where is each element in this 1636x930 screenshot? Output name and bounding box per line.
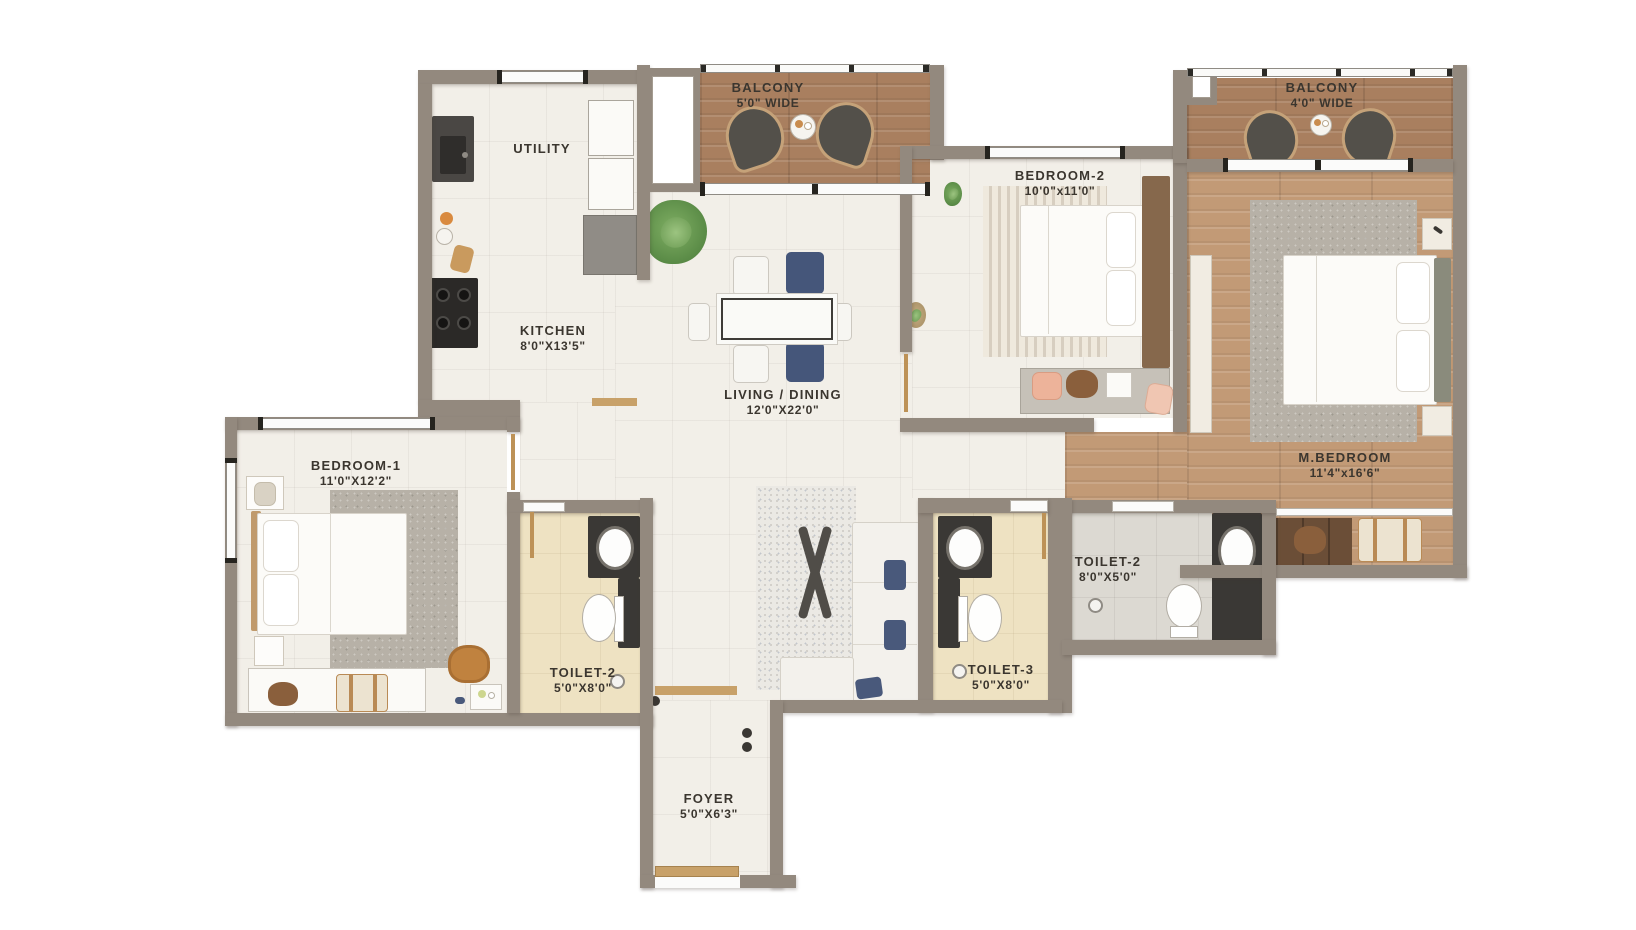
burner-icon [457, 288, 471, 302]
coffee-cup-icon [795, 120, 803, 128]
kitchen-threshold [592, 398, 637, 406]
window [985, 147, 1125, 158]
balcony-table [790, 114, 816, 140]
balcony-railing [700, 64, 930, 73]
door-leaf [904, 354, 908, 412]
dining-table [716, 293, 838, 345]
wall [1048, 498, 1072, 713]
pillow [1106, 212, 1136, 268]
refrigerator [588, 100, 634, 156]
sliding-door [1223, 159, 1413, 171]
duffel-bag [1066, 370, 1098, 398]
room-label-foyer: FOYER 5'0"X6'3" [680, 791, 738, 822]
door-leaf [1042, 513, 1046, 559]
room-label-utility: UTILITY [513, 141, 571, 157]
window [497, 71, 588, 83]
room-label-toilet-2-master: TOILET-2 8'0"X5'0" [1075, 554, 1141, 585]
shower-head-icon [1088, 598, 1103, 613]
wall [418, 400, 520, 417]
burner-icon [436, 288, 450, 302]
entrance-door [655, 866, 739, 877]
coffee-cup-icon [1322, 120, 1329, 127]
nightstand [1422, 406, 1452, 436]
dining-chair [733, 345, 769, 383]
deco-cup-icon [488, 692, 495, 699]
wall [507, 513, 520, 713]
cooktop [430, 278, 478, 348]
bedroom-2-headboard [1142, 176, 1170, 368]
balcony-railing [1187, 68, 1453, 77]
duffel-bag [1294, 526, 1326, 554]
pillow [263, 574, 299, 626]
deco-cup-icon [478, 690, 486, 698]
throw-pillow [884, 620, 906, 650]
cushion [1032, 372, 1062, 400]
coffee-cup-icon [804, 122, 812, 130]
foyer-threshold [655, 686, 737, 695]
vanity-counter [938, 578, 960, 648]
nightstand [254, 636, 284, 666]
room-label-m-bedroom: M.BEDROOM 11'4"x16'6" [1298, 450, 1391, 481]
sliding-door [700, 183, 930, 195]
wall [640, 498, 653, 888]
dining-chair [733, 256, 769, 296]
dining-chair [688, 303, 710, 341]
coffee-table-icon [795, 525, 835, 620]
deco-item [455, 697, 465, 704]
toilet-icon [1166, 584, 1202, 628]
shaft [1192, 76, 1211, 98]
floor-plan: BALCONY 5'0" WIDE BALCONY 4'0" WIDE UTIL… [0, 0, 1636, 930]
toilet-tank [958, 596, 968, 642]
floor-foyer [653, 700, 770, 875]
deco-tray [254, 482, 276, 506]
wall [1180, 565, 1467, 578]
room-label-balcony-2: BALCONY 4'0" WIDE [1286, 80, 1359, 111]
pillow [263, 520, 299, 572]
balcony-table [1310, 114, 1332, 136]
room-label-toilet-3: TOILET-3 5'0"X8'0" [968, 662, 1034, 693]
door-leaf [530, 512, 534, 558]
wardrobe-sliding-door [1276, 508, 1453, 516]
door-stop-icon [742, 728, 752, 738]
floor-master-entry [1065, 432, 1187, 500]
nightstand [1422, 218, 1452, 250]
utility-cabinet [588, 158, 634, 210]
washbasin-icon [946, 526, 984, 570]
cushion [1144, 382, 1175, 416]
pillow [1396, 262, 1430, 324]
throw-pillow [884, 560, 906, 590]
washbasin-icon [596, 526, 634, 570]
door-opening [1010, 500, 1048, 512]
wall [225, 713, 653, 726]
toilet-tank [1170, 626, 1198, 638]
desk-chair [448, 645, 490, 683]
side-table [470, 684, 502, 710]
pillow [1106, 270, 1136, 326]
room-label-living-dining: LIVING / DINING 12'0"X22'0" [724, 387, 842, 418]
master-headboard [1434, 258, 1451, 402]
duvet-fold [1048, 206, 1049, 334]
toilet-icon [582, 594, 616, 642]
door-opening [523, 502, 565, 512]
wall [918, 498, 933, 712]
duvet-fold [330, 514, 331, 632]
room-label-bedroom-2: BEDROOM-2 10'0"x11'0" [1015, 168, 1105, 199]
wall [770, 700, 783, 888]
pillow [1396, 330, 1430, 392]
burner-icon [436, 316, 450, 330]
room-label-balcony-1: BALCONY 5'0" WIDE [732, 80, 805, 111]
floor-corridor [912, 432, 1065, 498]
wall [900, 418, 1094, 432]
burner-icon [457, 316, 471, 330]
window [226, 458, 236, 563]
wall [783, 700, 1062, 713]
dining-chair-blue [786, 252, 824, 294]
toilet-icon [968, 594, 1002, 642]
suitcase [336, 674, 388, 712]
wall [1062, 640, 1276, 655]
duvet-fold [1316, 256, 1317, 402]
door-opening [1112, 501, 1174, 512]
wall [1262, 513, 1276, 655]
coffee-cup-icon [1314, 119, 1321, 126]
washing-machine [583, 215, 637, 275]
kitchen-faucet-icon [462, 152, 468, 158]
door-leaf [511, 434, 515, 490]
kitchen-deco-plate [436, 228, 453, 245]
wall [1173, 70, 1187, 163]
shower-head-icon [952, 664, 967, 679]
throw-pillow [855, 676, 884, 699]
kitchen-deco-jar [440, 212, 453, 225]
window [258, 418, 435, 429]
shaft [652, 76, 694, 184]
room-label-kitchen: KITCHEN 8'0"X13'5" [520, 323, 586, 354]
storage-box [1106, 372, 1132, 398]
wall [900, 146, 912, 352]
dining-chair-blue [786, 342, 824, 382]
wall [1453, 65, 1467, 578]
tv-console [1190, 255, 1212, 433]
wall [418, 84, 432, 402]
wall [1173, 146, 1187, 432]
door-stop-icon [742, 742, 752, 752]
duffel-bag [268, 682, 298, 706]
luggage-bench [1358, 518, 1422, 562]
room-label-bedroom-1: BEDROOM-1 11'0"X12'2" [311, 458, 401, 489]
wall [507, 417, 520, 432]
room-label-toilet-2-left: TOILET-2 5'0"X8'0" [550, 665, 616, 696]
